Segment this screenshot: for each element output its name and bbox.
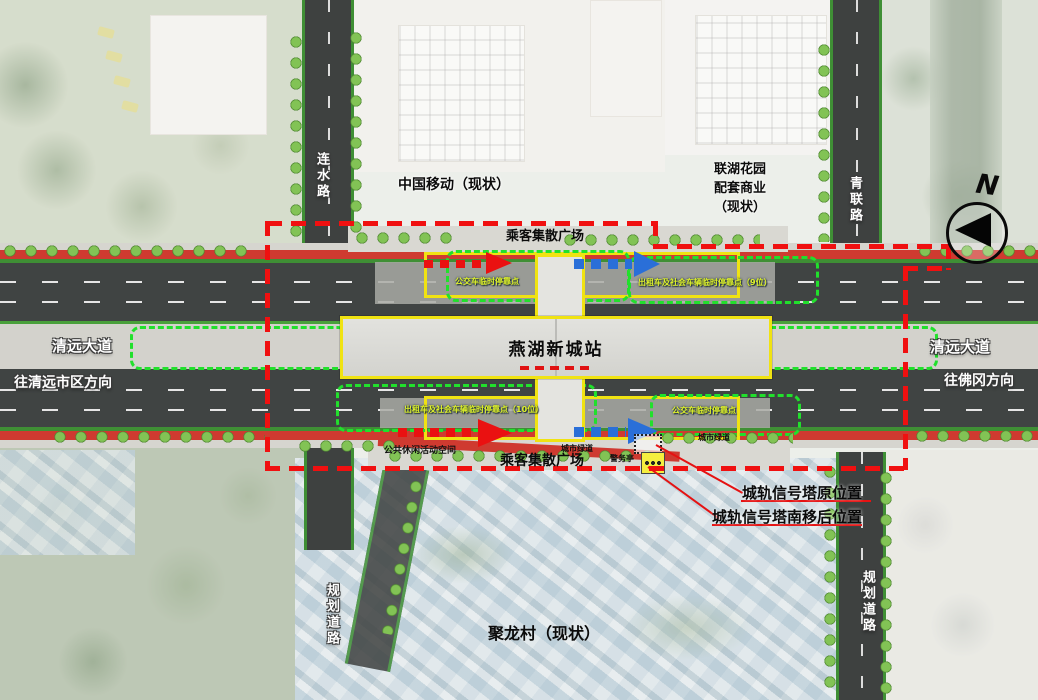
red-flow-dots-north xyxy=(424,260,486,268)
label-qingyuan-ave-east: 清远大道 xyxy=(930,336,990,357)
label-greenway-west: 城市绿道 xyxy=(561,443,593,454)
label-lianshui-road: 连水路 xyxy=(312,152,331,200)
red-flow-dots-south xyxy=(398,428,478,437)
label-to-qingyuan-downtown: 往清远市区方向 xyxy=(14,372,112,392)
station-south-red-dashes xyxy=(520,366,590,370)
label-qingyuan-ave-west: 清远大道 xyxy=(52,335,112,356)
boundary-jog-east xyxy=(903,266,951,271)
boundary-bottom xyxy=(265,466,908,471)
label-china-mobile: 中国移动（现状） xyxy=(398,174,510,194)
site-plan-map: 燕湖新城站 N 中国移动（现状 xyxy=(0,0,1038,700)
label-lianhu-line2: 配套商业 xyxy=(694,177,786,196)
boundary-left xyxy=(265,221,270,471)
blue-flow-dots-south xyxy=(574,427,626,437)
station-name-label: 燕湖新城站 xyxy=(509,335,604,360)
compass-n-label: N xyxy=(974,169,1001,203)
median-zone-west xyxy=(130,326,348,370)
compass-needle-icon xyxy=(955,213,991,247)
label-police-kiosk: 警务亭 xyxy=(610,453,634,464)
blue-flow-dots-north xyxy=(574,259,632,269)
label-greenway-east: 城市绿道 xyxy=(698,432,730,443)
label-signal-tower-original: 城轨信号塔原位置 xyxy=(742,482,862,503)
boundary-top-west xyxy=(267,221,657,226)
red-arrow-north xyxy=(486,252,512,274)
label-planned-road-se: 规划道路 xyxy=(858,570,877,634)
trees-north-west xyxy=(0,241,250,261)
median-zone-east xyxy=(760,326,938,370)
label-north-bus-stop: 公交车临时停靠点 xyxy=(455,276,519,287)
north-compass: N xyxy=(938,170,1018,262)
label-julong-village: 聚龙村（现状） xyxy=(488,620,600,644)
label-south-taxi-stop: 出租车及社会车辆临时停靠点（10位） xyxy=(404,404,543,415)
trees-south-west xyxy=(50,427,265,447)
label-north-taxi-stop: 出租车及社会车辆临时停靠点（9位） xyxy=(638,277,772,288)
label-lianhu-line3: （现状） xyxy=(694,196,786,215)
trees-south-plaza-left xyxy=(295,436,395,458)
label-lianhu-commercial: 联湖花园 配套商业 （现状） xyxy=(694,158,786,215)
label-leisure-space: 公共休闲活动空间 xyxy=(384,443,456,456)
blue-arrow-north xyxy=(634,251,660,277)
label-to-fogang: 往佛冈方向 xyxy=(944,370,1014,390)
trees-lianshui-west xyxy=(286,32,306,240)
planned-road-sw-stub xyxy=(304,445,354,550)
trees-se-road-east xyxy=(876,468,896,698)
trees-south-east xyxy=(912,426,1038,446)
red-arrow-south xyxy=(478,419,512,447)
label-lianhu-line1: 联湖花园 xyxy=(694,158,786,177)
boundary-top-east xyxy=(653,244,951,249)
label-north-plaza: 乘客集散广场 xyxy=(506,225,584,244)
trees-north-plaza-left xyxy=(352,228,457,248)
wash-top xyxy=(0,0,1038,243)
trees-lianshui-east xyxy=(346,28,366,240)
label-signal-tower-relocated: 城轨信号塔南移后位置 xyxy=(712,506,862,527)
boundary-right xyxy=(903,266,908,470)
trees-qinglian xyxy=(814,40,834,242)
label-planned-road-sw: 规划道路 xyxy=(322,583,341,647)
label-qinglian-road: 青联路 xyxy=(845,176,864,224)
label-south-bus-stop: 公交车临时停靠点 xyxy=(672,405,736,416)
